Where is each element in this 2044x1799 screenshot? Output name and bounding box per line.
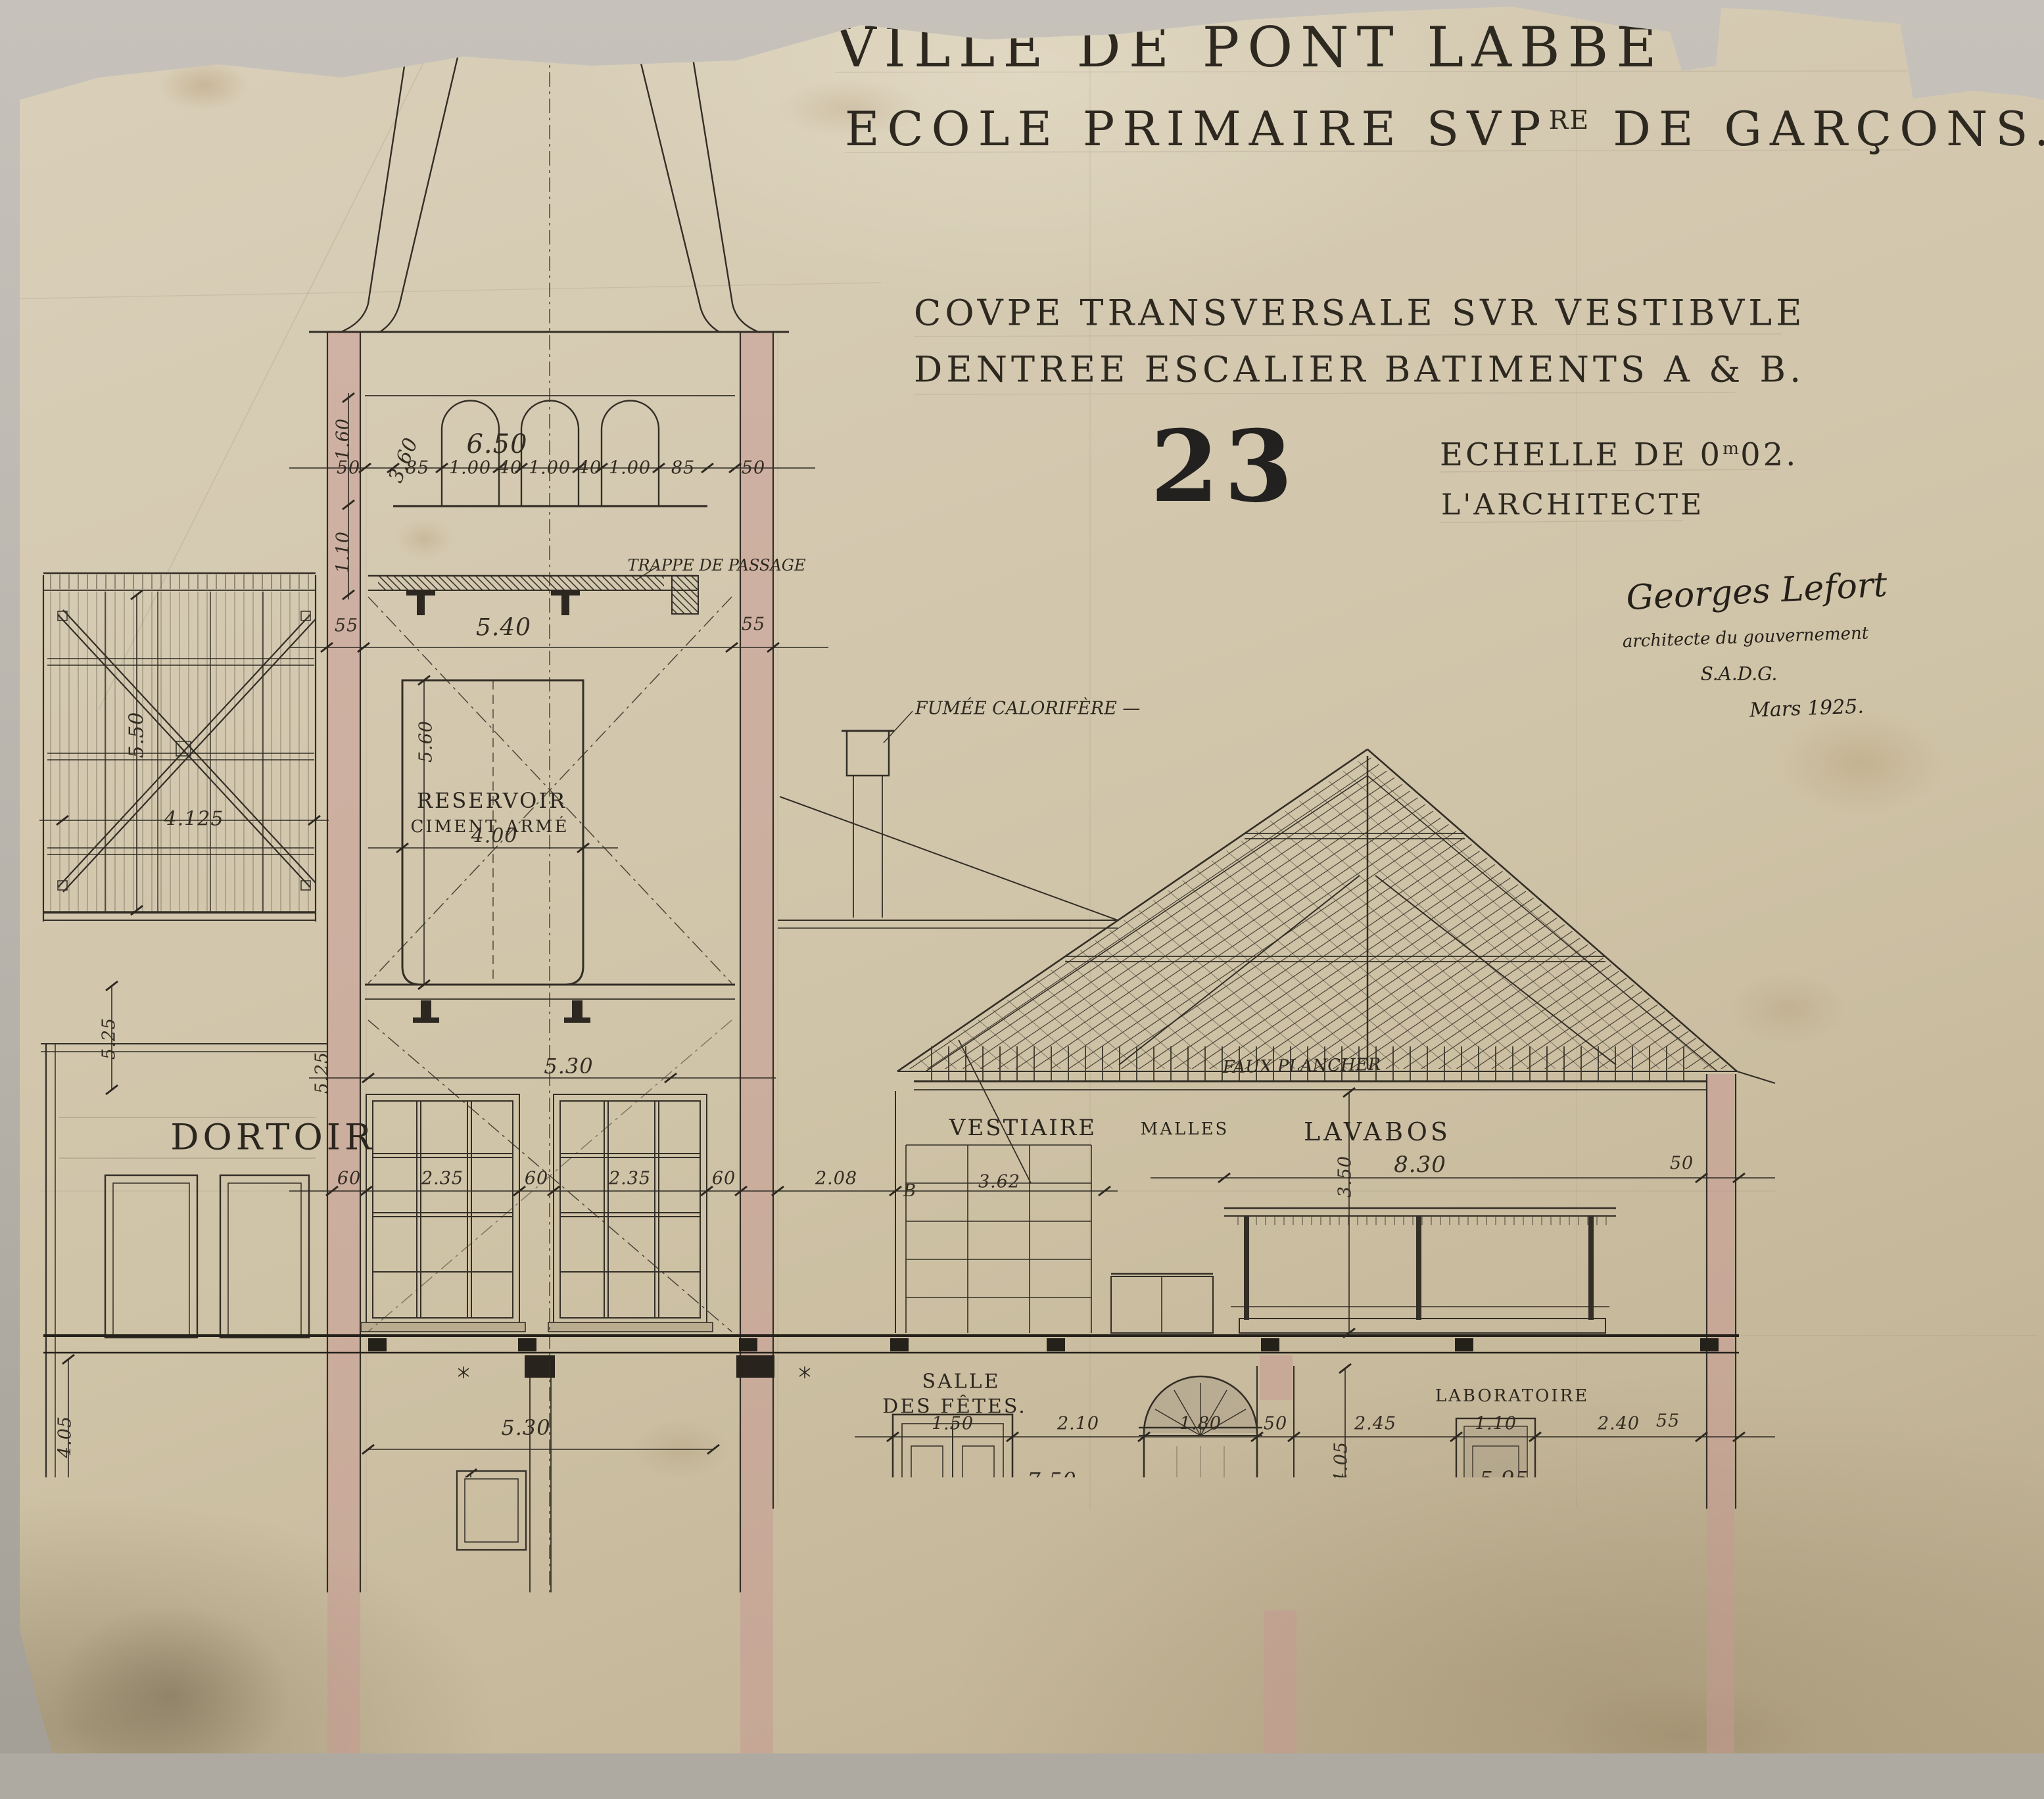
signature-org: S.A.D.G. — [1701, 663, 1778, 685]
dim-180: 1.80 — [1179, 1414, 1222, 1434]
dim-55: 55 — [1302, 1645, 1325, 1666]
dim-25: 25 — [364, 1477, 388, 1497]
dim-60: 60 — [337, 1169, 361, 1189]
dim-515: 5.15 — [511, 1710, 564, 1737]
dim-350: 3.50 — [1335, 1156, 1356, 1198]
sheet-number: 23 — [1151, 409, 1298, 525]
sheet-title-line2: ECOLE PRIMAIRE SVPRE DE GARÇONS. — [845, 101, 2044, 156]
trap-door-note: TRAPPE DE PASSAGE — [627, 556, 805, 574]
dim-650: 6.50 — [466, 429, 527, 459]
dim-245: 2.45 — [1354, 1414, 1396, 1434]
sheet-title-line1: VILLE DE PONT LABBE — [836, 15, 1665, 80]
dim-362: 3.62 — [978, 1172, 1020, 1192]
dim-100: 1.00 — [449, 458, 491, 479]
calorifere-note: CALORIFÈRE — [870, 1642, 982, 1660]
dim-540: 5.40 — [476, 615, 531, 642]
dim-405: 4.05 — [55, 1416, 76, 1458]
title2-sup: RE — [1549, 105, 1590, 135]
dim-70: 70 — [715, 1714, 739, 1734]
dim-208: 2.08 — [815, 1169, 857, 1189]
dim-400: 4.00 — [471, 825, 518, 848]
signature-date: Mars 1925. — [1749, 695, 1865, 722]
dim-160: 1.60 — [333, 418, 354, 460]
dim-550: 5.50 — [126, 712, 149, 759]
room-label-salle1: SALLE — [922, 1370, 1001, 1393]
dim-750: 7.50 — [1027, 1468, 1076, 1493]
dim-405: 4.05 — [1331, 1441, 1352, 1484]
axis-marker-b: B — [903, 1181, 916, 1201]
dim-85: 85 — [671, 458, 695, 479]
cour-jeux: JEVX. — [1909, 1566, 2002, 1600]
axis-lines — [368, 20, 732, 1775]
dim-560: 5.60 — [416, 720, 437, 762]
cour-word: COVR — [1759, 1566, 1855, 1600]
dim-120: 1.20 — [643, 1764, 685, 1784]
dim-40: 40 — [578, 458, 602, 479]
dim-70: 70 — [335, 1714, 359, 1734]
dim-55: 55 — [335, 616, 358, 636]
dim-55: 55 — [742, 615, 765, 635]
dim-50: 50 — [1264, 1414, 1287, 1434]
blueprint-sheet: VILLE DE PONT LABBE ECOLE PRIMAIRE SVPRE… — [0, 0, 2044, 1799]
room-label-laboratoire: LABORATOIRE — [1435, 1386, 1589, 1406]
dim-240: 2.40 — [1598, 1414, 1640, 1434]
dim-60: 60 — [712, 1169, 736, 1189]
scanned-drawing: VILLE DE PONT LABBE ECOLE PRIMAIRE SVPRE… — [0, 0, 2044, 1799]
room-label-reservoir: RESERVOIR — [417, 788, 567, 813]
title2-post: DE GARÇONS. — [1590, 101, 2044, 156]
dim-100: 1.00 — [529, 458, 571, 479]
cour-de: des — [1864, 1577, 1899, 1597]
dim-235: 2.35 — [609, 1169, 651, 1189]
dim-40: 40 — [498, 458, 522, 479]
scale-post: 02. — [1740, 436, 1798, 473]
scale-sup: m — [1723, 438, 1740, 459]
dim-60: 60 — [337, 1477, 361, 1497]
drawing-subtitle-line2: DENTREE ESCALIER BATIMENTS A & B. — [914, 349, 1805, 390]
room-label-vestiaire: VESTIAIRE — [949, 1115, 1097, 1141]
dim-290: 2.90 — [584, 1477, 627, 1497]
dim-150: 1.50 — [932, 1414, 974, 1434]
earth-hatching — [37, 1605, 1959, 1785]
dim-100: 1.00 — [609, 458, 651, 479]
dim-50: 50 — [1670, 1154, 1694, 1174]
dim-525: 5.25 — [99, 1017, 120, 1060]
dim-245: 2.45 — [431, 1477, 473, 1497]
flue-note: FUMÉE CALORIFÈRE — — [915, 699, 1140, 719]
dim-235: 2.35 — [421, 1169, 463, 1189]
dim-60: 60 — [1705, 1645, 1729, 1666]
dim-60: 60 — [525, 1169, 548, 1189]
scale-pre: ECHELLE DE 0 — [1440, 436, 1723, 473]
scale-note: ECHELLE DE 0m02. — [1440, 436, 1798, 473]
dim-4125: 4.125 — [164, 808, 224, 831]
dim-280: 2.80 — [494, 1764, 536, 1784]
drawing-canvas — [0, 0, 2044, 1799]
false-floor-note: FAUX PLANCHER — [1222, 1055, 1381, 1077]
dim-530: 5.30 — [501, 1415, 550, 1440]
title2-pre: ECOLE PRIMAIRE SVP — [845, 101, 1549, 156]
dim-595: 5.95 — [1479, 1466, 1529, 1491]
dim-110: 1.10 — [333, 531, 354, 573]
dim-830: 8.30 — [1394, 1152, 1446, 1178]
dim-60: 60 — [766, 1566, 790, 1587]
remblai-note: REMBLAI — [113, 1620, 213, 1647]
dim-110: 1.10 — [571, 1764, 613, 1784]
dim-210: 2.10 — [1057, 1414, 1099, 1434]
dim-240: 2.40 — [456, 1719, 476, 1762]
roof-framing-plan — [43, 573, 316, 922]
room-label-dortoir: DORTOIR — [170, 1117, 375, 1158]
dim-280: 2.80 — [1029, 1709, 1049, 1751]
dim-405: 4.05 — [456, 1570, 477, 1612]
room-label-lavabos: LAVABOS — [1304, 1117, 1451, 1146]
drawing-subtitle-line1: COVPE TRANSVERSALE SVR VESTIBVLE — [914, 292, 1806, 334]
room-label-malles: MALLES — [1141, 1119, 1229, 1139]
tower-section — [309, 1, 810, 1783]
dim-50: 50 — [337, 458, 360, 479]
dim-110: 1.10 — [1475, 1414, 1517, 1434]
dim-50: 50 — [742, 458, 765, 479]
dim-530: 5.30 — [544, 1054, 593, 1079]
dim-55: 55 — [1656, 1411, 1680, 1432]
courtyard-label: COVRdesJEVX. — [1759, 1566, 2002, 1600]
dim-745: 7.45 — [1021, 1642, 1076, 1669]
architect-label: L'ARCHITECTE — [1441, 488, 1704, 522]
dim-525: 5.25 — [312, 1052, 333, 1094]
